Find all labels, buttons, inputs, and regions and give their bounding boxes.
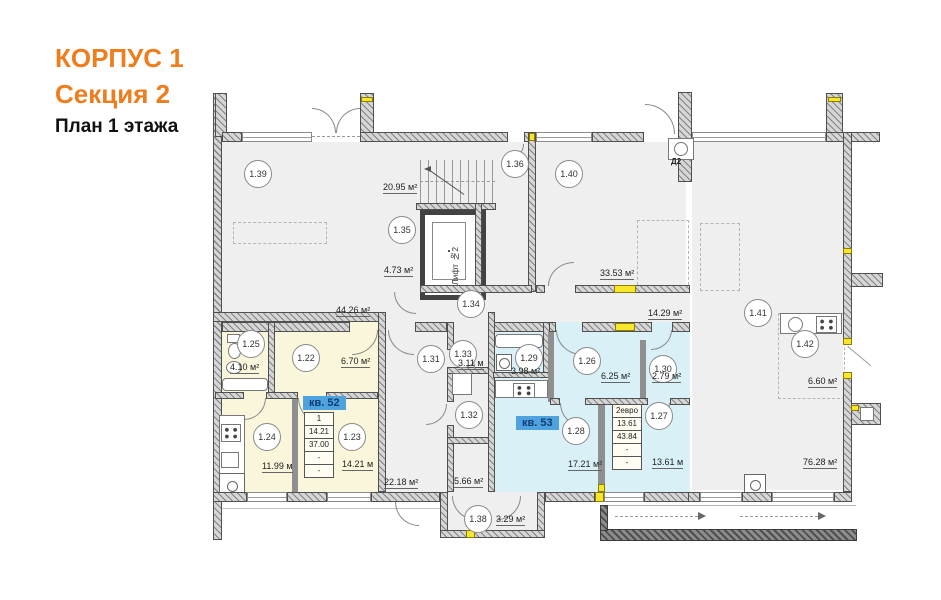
area-label-133: 3.11 м xyxy=(458,358,484,370)
area-label-141: 76.28 м² xyxy=(803,457,837,469)
wall-segment xyxy=(826,132,880,142)
door-arc xyxy=(395,502,419,526)
window-segment xyxy=(247,492,287,502)
room-label-122: 1.22 xyxy=(292,344,320,372)
wall-segment xyxy=(834,492,852,502)
wall-segment xyxy=(371,492,440,502)
walkway-line xyxy=(600,505,856,506)
wall-segment xyxy=(440,530,545,538)
window-segment xyxy=(604,492,644,502)
column-core xyxy=(674,142,688,156)
room-label-138: 1.38 xyxy=(464,505,492,533)
room-label-131: 1.31 xyxy=(417,345,445,373)
wall-segment xyxy=(215,392,244,399)
area-label-125: 4.10 м² xyxy=(230,362,259,374)
wall-fin xyxy=(851,273,883,287)
dashed-outline xyxy=(233,222,327,244)
room-label-135: 1.35 xyxy=(388,216,416,244)
area-label-142: 6.60 м² xyxy=(808,376,837,388)
vent-shaft-core xyxy=(860,407,874,421)
window-segment xyxy=(772,492,834,502)
room-label-139: 1.39 xyxy=(244,160,272,188)
spec-row: 37.00 xyxy=(305,439,333,452)
wall-pilaster xyxy=(215,93,227,137)
yellow-vent-tick xyxy=(828,97,841,102)
wall-segment xyxy=(292,399,298,492)
wall-segment xyxy=(213,492,247,502)
room-number: 1.39 xyxy=(249,169,267,179)
wall-segment xyxy=(488,312,495,492)
room-label-134: 1.34 xyxy=(457,290,485,318)
yellow-vent-tick xyxy=(614,285,636,293)
area-label-134: 44.26 м² xyxy=(336,305,370,317)
yellow-vent-tick xyxy=(843,372,852,379)
wall-segment xyxy=(222,132,242,142)
window-segment xyxy=(700,492,742,502)
window-segment xyxy=(327,492,371,502)
room-label-124: 1.24 xyxy=(253,423,281,451)
window-segment xyxy=(242,132,312,142)
wall-segment xyxy=(545,492,595,502)
area-label-123: 14.21 м xyxy=(342,459,373,471)
direction-arrow xyxy=(615,516,698,517)
room-label-141: 1.41 xyxy=(744,299,772,327)
dashed-outline xyxy=(700,223,740,291)
title-floor: План 1 этажа xyxy=(55,116,178,138)
area-label-122: 6.70 м² xyxy=(341,356,370,368)
area-label-130: 2.79 м² xyxy=(652,371,681,383)
window-segment xyxy=(536,132,592,142)
stove-icon xyxy=(513,383,535,398)
room-number: 1.40 xyxy=(560,169,578,179)
title-section: Секция 2 xyxy=(55,80,170,108)
wall-segment xyxy=(268,322,275,394)
area-label-129: 3.98 м² xyxy=(511,366,540,378)
area-label-stairs: 20.95 м² xyxy=(383,182,417,194)
wall-segment xyxy=(360,132,508,142)
door-arc xyxy=(336,108,360,133)
direction-arrow-head xyxy=(818,512,826,520)
wall-segment xyxy=(688,492,700,502)
wall-segment xyxy=(378,312,386,492)
room-label-126: 1.26 xyxy=(573,347,601,375)
spec-row: 13.61 xyxy=(613,418,641,431)
door-arc xyxy=(645,104,675,134)
wall-segment xyxy=(416,203,496,210)
room-number: 1.41 xyxy=(749,308,767,318)
room-number: 1.26 xyxy=(578,356,596,366)
area-label-127: 13.61 м xyxy=(652,457,683,469)
room-label-123: 1.23 xyxy=(338,423,366,451)
yellow-vent-tick xyxy=(843,248,852,254)
wall-segment xyxy=(475,203,482,293)
window-segment xyxy=(692,132,826,142)
yellow-vent-tick xyxy=(361,97,373,102)
area-label-135: 4.73 м² xyxy=(384,265,413,277)
bathtub-icon xyxy=(222,378,268,391)
yellow-vent-tick xyxy=(843,338,852,345)
terrace-wall xyxy=(600,505,608,531)
yellow-vent-tick xyxy=(615,323,635,331)
wall-segment xyxy=(592,132,644,142)
door-arc xyxy=(312,108,336,133)
room-number: 1.27 xyxy=(650,411,668,421)
room-number: 1.24 xyxy=(258,432,276,442)
wall-segment xyxy=(670,398,690,405)
apartment-53-label: кв. 53 xyxy=(516,416,559,430)
apartment-52-label: кв. 52 xyxy=(303,396,346,410)
wall-segment xyxy=(640,340,646,402)
d2-door-label: Д2 xyxy=(671,157,681,166)
stove-icon xyxy=(816,316,837,333)
wall-pilaster xyxy=(678,92,692,182)
yellow-vent-tick xyxy=(851,405,859,411)
room-number: 1.28 xyxy=(567,426,585,436)
room-label-128: 1.28 xyxy=(562,417,590,445)
spec-row: 2евро xyxy=(613,405,641,418)
direction-arrow-head xyxy=(698,512,706,520)
apartment-53-spec-table: 2евро 13.61 43.84 - - xyxy=(612,404,642,470)
elevator-label: Лифт №2 xyxy=(450,225,460,285)
spec-row: - xyxy=(305,452,333,465)
room-label-127: 1.27 xyxy=(645,402,673,430)
room-number: 1.32 xyxy=(460,410,478,420)
spec-row: - xyxy=(305,465,333,477)
area-label-566: 5.66 м² xyxy=(454,476,483,488)
room-label-132: 1.32 xyxy=(455,401,483,429)
direction-arrow xyxy=(740,516,818,517)
wall-segment xyxy=(222,322,350,332)
wall-segment xyxy=(598,405,605,492)
room-label-140: 1.40 xyxy=(555,160,583,188)
spec-row: 1 xyxy=(305,413,333,426)
yellow-vent-tick xyxy=(595,492,604,502)
room-number: 1.35 xyxy=(393,225,411,235)
floor-plan-page: КОРПУС 1 Секция 2 План 1 этажа Д2 xyxy=(0,0,941,600)
wall-segment xyxy=(415,322,447,332)
title-building: КОРПУС 1 xyxy=(55,44,184,72)
area-label-140: 33.53 м² xyxy=(600,268,634,280)
wall-segment xyxy=(644,492,690,502)
room-number: 1.22 xyxy=(297,353,315,363)
terrace-wall xyxy=(600,529,857,541)
yellow-vent-tick xyxy=(529,133,535,141)
area-label-128: 17.21 м² xyxy=(568,459,602,471)
room-number: 1.36 xyxy=(506,159,524,169)
room-number: 1.23 xyxy=(343,432,361,442)
spec-row: 43.84 xyxy=(613,431,641,444)
room-number: 1.42 xyxy=(796,339,814,349)
spec-row: - xyxy=(613,457,641,469)
wall-segment xyxy=(672,322,690,332)
room-number: 1.34 xyxy=(462,299,480,309)
area-label-126: 6.25 м² xyxy=(601,371,630,383)
wall-segment xyxy=(266,392,298,399)
shower-icon xyxy=(452,373,472,395)
area-label-124: 11.99 м xyxy=(262,461,293,473)
wall-segment xyxy=(742,492,772,502)
area-label-2218: 22.18 м² xyxy=(384,477,418,489)
wall-segment xyxy=(528,132,536,292)
dashed-outline xyxy=(637,220,689,290)
room-number: 1.38 xyxy=(469,514,487,524)
room-label-125: 1.25 xyxy=(237,330,265,358)
yellow-vent-tick xyxy=(598,484,605,492)
spec-row: - xyxy=(613,444,641,457)
wall-segment xyxy=(536,285,545,293)
apartment-52-spec-table: 1 14.21 37.00 - - xyxy=(304,412,334,478)
room-number: 1.29 xyxy=(520,353,538,363)
wall-segment xyxy=(447,425,454,492)
door-threshold xyxy=(312,136,360,137)
area-label-138: 3.29 м² xyxy=(496,514,525,526)
room-number: 1.25 xyxy=(242,339,260,349)
area-label-corridor2: 14.29 м² xyxy=(648,308,682,320)
door-leaf xyxy=(847,346,871,366)
wall-segment xyxy=(550,398,560,405)
room-label-136: 1.36 xyxy=(501,150,529,178)
elevator-cab xyxy=(432,222,466,280)
spec-row: 14.21 xyxy=(305,426,333,439)
wall-segment xyxy=(548,332,554,402)
stair-arrow-head xyxy=(424,166,431,172)
room-number: 1.31 xyxy=(422,354,440,364)
room-label-142: 1.42 xyxy=(791,330,819,358)
wall-segment xyxy=(287,492,327,502)
washing-machine-icon xyxy=(496,354,512,371)
stairs-midline xyxy=(420,181,495,182)
wall-segment xyxy=(843,132,852,345)
stove-icon xyxy=(221,424,241,442)
appliance-icon xyxy=(221,452,239,468)
wall-segment xyxy=(843,372,852,492)
